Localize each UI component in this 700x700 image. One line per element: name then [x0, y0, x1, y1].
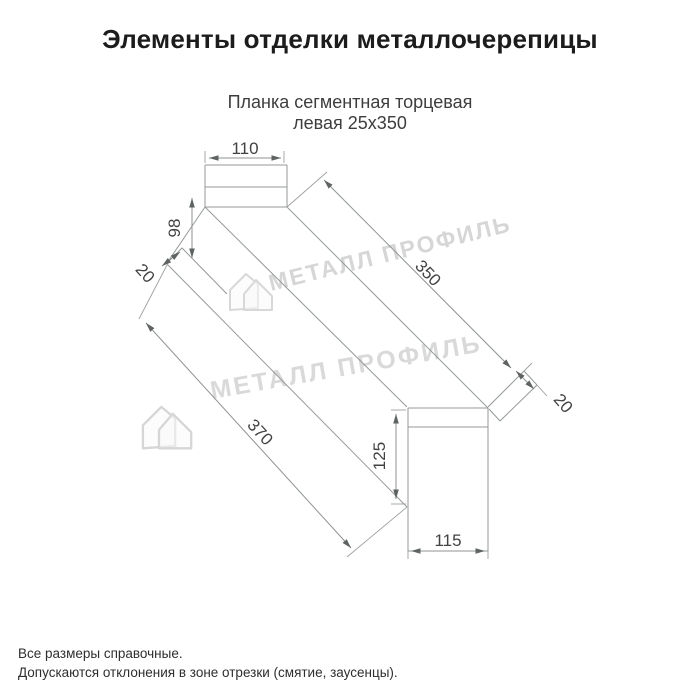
dim-label-110: 110: [231, 139, 258, 158]
dim-line-20-left: [162, 252, 180, 266]
metall-profil-house-logo: [143, 407, 191, 448]
bottom-end-face: [408, 408, 488, 551]
page: Элементы отделки металлочерепицы Планка …: [0, 0, 700, 700]
dimension-labels: 110 98 20 370 350 20 125 115: [132, 139, 577, 550]
footer-notes: Все размеры справочные. Допускаются откл…: [18, 644, 398, 682]
watermark-text: МЕТАЛЛ ПРОФИЛЬ: [208, 330, 484, 405]
dim-label-20-left: 20: [132, 260, 159, 287]
watermark-band-1: МЕТАЛЛ ПРОФИЛЬ: [230, 210, 514, 310]
dim-line-20-right: [516, 371, 534, 389]
technical-drawing: МЕТАЛЛ ПРОФИЛЬ МЕТАЛЛ ПРОФИЛЬ: [0, 0, 700, 700]
footer-note-2: Допускаются отклонения в зоне отрезки (с…: [18, 663, 398, 682]
watermark-band-2: МЕТАЛЛ ПРОФИЛЬ: [143, 330, 484, 449]
dim-label-370: 370: [243, 415, 276, 449]
dim-label-115: 115: [434, 531, 461, 550]
top-end-face: [205, 165, 287, 207]
dim-label-350: 350: [411, 256, 444, 290]
metall-profil-house-logo: [230, 274, 272, 310]
footer-note-1: Все размеры справочные.: [18, 644, 398, 663]
dim-label-125: 125: [370, 442, 389, 470]
dim-label-98: 98: [165, 219, 184, 238]
dim-label-20-right: 20: [550, 390, 577, 417]
right-fold-tab: [488, 371, 537, 421]
